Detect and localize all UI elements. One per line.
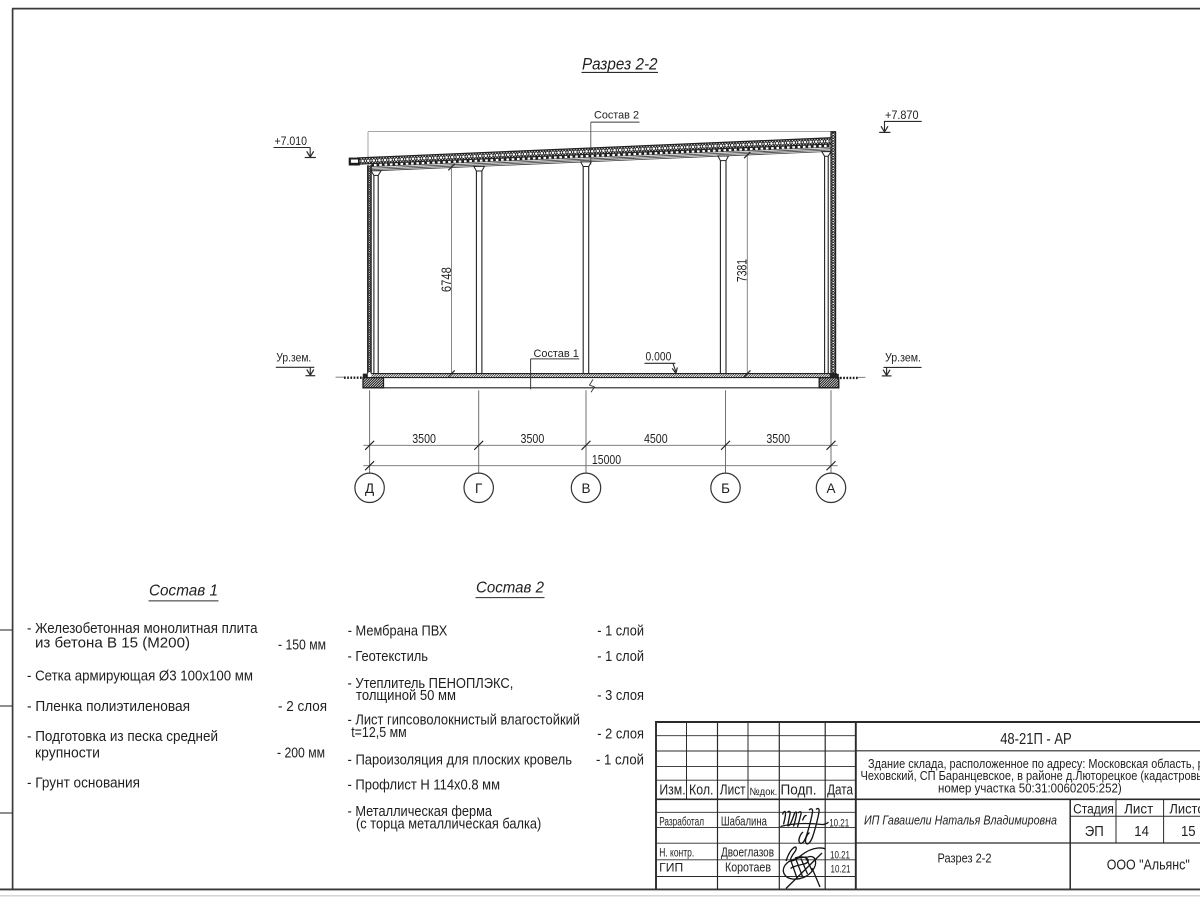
svg-text:- Сетка армирующая Ø3 100х100: - Сетка армирующая Ø3 100х100 мм	[27, 669, 253, 685]
svg-text:Коротаев: Коротаев	[725, 861, 771, 875]
svg-text:- Подготовка из песка средней: - Подготовка из песка средней	[27, 729, 218, 745]
svg-text:- Железобетонная монолитная п: - Железобетонная монолитная плита	[27, 621, 258, 637]
svg-text:Кол.: Кол.	[689, 782, 714, 799]
svg-text:Изм.: Изм.	[659, 782, 685, 799]
svg-text:3500: 3500	[521, 432, 545, 446]
svg-text:10.21: 10.21	[830, 849, 850, 861]
svg-text:6748: 6748	[439, 267, 454, 292]
svg-text:+7.870: +7.870	[885, 110, 919, 122]
svg-text:ИП Гавашели Наталья Владимиров: ИП Гавашели Наталья Владимировна	[864, 814, 1057, 828]
svg-text:В: В	[581, 481, 590, 496]
svg-text:Разрез 2-2: Разрез 2-2	[938, 850, 992, 865]
svg-text:- 200 мм: - 200 мм	[277, 745, 325, 761]
svg-text:№док.: №док.	[750, 786, 778, 798]
svg-text:- Профлист Н 114х0.8 мм: - Профлист Н 114х0.8 мм	[348, 778, 501, 794]
svg-text:Лист: Лист	[720, 782, 746, 799]
svg-text:толщиной 50 мм: толщиной 50 мм	[356, 688, 456, 704]
svg-text:- 1 слой: - 1 слой	[597, 649, 644, 665]
svg-text:номер участка 50:31:0060205:25: номер участка 50:31:0060205:252)	[938, 780, 1122, 795]
svg-text:3500: 3500	[412, 432, 436, 446]
svg-text:15: 15	[1181, 823, 1196, 840]
svg-text:Лист: Лист	[1124, 801, 1153, 816]
svg-text:- 2 слоя: - 2 слоя	[278, 699, 327, 715]
svg-text:3500: 3500	[766, 432, 790, 446]
svg-text:- 2 слоя: - 2 слоя	[597, 727, 644, 743]
svg-text:Ур.зем.: Ур.зем.	[276, 353, 311, 365]
svg-text:Двоеглазов: Двоеглазов	[721, 845, 774, 859]
svg-text:48-21П - АР: 48-21П - АР	[1000, 731, 1071, 748]
svg-text:Состав 1: Состав 1	[534, 348, 579, 360]
svg-text:- Пленка полиэтиленовая: - Пленка полиэтиленовая	[27, 699, 190, 715]
svg-text:ГИП: ГИП	[659, 863, 683, 875]
svg-text:10.21: 10.21	[831, 864, 851, 876]
svg-text:- Пароизоляция для плоских кро: - Пароизоляция для плоских кровель	[348, 753, 573, 769]
svg-text:15000: 15000	[592, 453, 621, 467]
svg-text:- 3 слоя: - 3 слоя	[597, 688, 644, 704]
svg-text:Состав 2: Состав 2	[594, 110, 639, 122]
svg-text:- 1 слой: - 1 слой	[597, 623, 644, 639]
svg-text:Г: Г	[475, 481, 483, 496]
svg-text:из бетона В 15 (М200): из бетона В 15 (М200)	[35, 636, 190, 652]
svg-text:Д: Д	[365, 481, 374, 496]
svg-text:Б: Б	[721, 481, 730, 496]
svg-text:10.21: 10.21	[829, 818, 849, 830]
svg-text:Разрез 2-2: Разрез 2-2	[582, 54, 658, 73]
svg-text:- 1 слой: - 1 слой	[596, 753, 644, 769]
svg-text:4500: 4500	[644, 432, 668, 446]
svg-text:- Мембрана ПВХ: - Мембрана ПВХ	[348, 623, 448, 639]
svg-text:0.000: 0.000	[646, 351, 672, 363]
svg-text:- Геотекстиль: - Геотекстиль	[348, 649, 429, 665]
svg-text:- Грунт основания: - Грунт основания	[27, 775, 140, 791]
svg-text:ЭП: ЭП	[1085, 823, 1104, 840]
svg-text:7381: 7381	[735, 259, 750, 282]
svg-text:Подп.: Подп.	[781, 782, 817, 799]
svg-text:Разработал: Разработал	[659, 816, 704, 828]
svg-text:Листов: Листов	[1169, 801, 1200, 816]
svg-text:Ур.зем.: Ур.зем.	[885, 353, 921, 365]
svg-text:t=12,5 мм: t=12,5 мм	[351, 725, 407, 741]
svg-text:крупности: крупности	[35, 745, 100, 761]
svg-text:А: А	[826, 481, 835, 496]
svg-text:Состав 1: Состав 1	[149, 583, 218, 600]
svg-text:ООО "Альянс": ООО "Альянс"	[1107, 858, 1190, 874]
svg-text:Дата: Дата	[827, 782, 853, 799]
svg-text:Состав 2: Состав 2	[476, 580, 544, 597]
svg-text:+7.010: +7.010	[275, 136, 308, 148]
svg-text:Стадия: Стадия	[1073, 801, 1114, 816]
svg-text:(с торца металлическая балка): (с торца металлическая балка)	[356, 817, 541, 833]
svg-text:- 150 мм: - 150 мм	[278, 638, 326, 654]
svg-text:Н. контр.: Н. контр.	[659, 847, 694, 859]
svg-text:14: 14	[1134, 823, 1149, 840]
svg-text:Шабалина: Шабалина	[721, 814, 767, 828]
